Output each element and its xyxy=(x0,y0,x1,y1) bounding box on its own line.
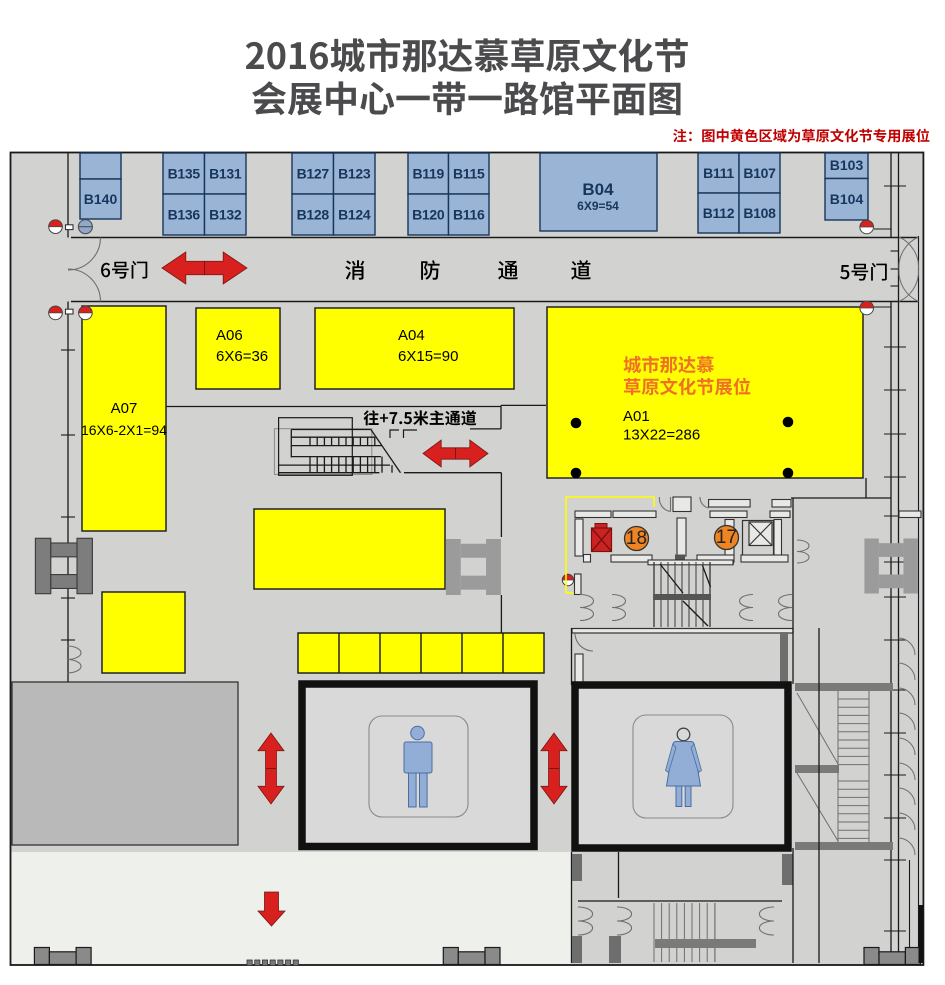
svg-text:B119: B119 xyxy=(413,166,445,182)
svg-text:17: 17 xyxy=(716,527,737,548)
svg-text:A06: A06 xyxy=(216,327,243,344)
svg-text:B140: B140 xyxy=(84,191,118,207)
svg-text:16X6-2X1=94: 16X6-2X1=94 xyxy=(81,422,167,438)
svg-text:13X22=286: 13X22=286 xyxy=(623,427,700,444)
svg-text:A04: A04 xyxy=(398,327,425,344)
svg-text:B124: B124 xyxy=(338,207,371,223)
svg-text:B136: B136 xyxy=(168,207,201,223)
svg-text:B112: B112 xyxy=(703,205,735,221)
svg-text:A07: A07 xyxy=(111,400,138,417)
svg-text:6X6=36: 6X6=36 xyxy=(216,348,268,365)
svg-text:A01: A01 xyxy=(623,408,650,425)
svg-text:B128: B128 xyxy=(297,207,330,223)
svg-text:B111: B111 xyxy=(703,165,734,181)
svg-text:B108: B108 xyxy=(743,205,776,221)
svg-text:B131: B131 xyxy=(209,166,242,182)
svg-text:B127: B127 xyxy=(297,166,330,182)
svg-text:B107: B107 xyxy=(743,165,776,181)
svg-text:B135: B135 xyxy=(168,166,201,182)
svg-text:6X9=54: 6X9=54 xyxy=(577,199,619,213)
svg-text:B104: B104 xyxy=(830,191,864,207)
svg-text:B132: B132 xyxy=(209,207,242,223)
svg-text:B123: B123 xyxy=(338,166,371,182)
svg-text:B04: B04 xyxy=(582,180,614,199)
svg-text:18: 18 xyxy=(626,528,647,549)
svg-text:B120: B120 xyxy=(412,207,445,223)
svg-text:B103: B103 xyxy=(830,157,864,173)
svg-text:6X15=90: 6X15=90 xyxy=(398,348,458,365)
svg-text:B116: B116 xyxy=(453,207,485,223)
svg-text:B115: B115 xyxy=(453,166,485,182)
